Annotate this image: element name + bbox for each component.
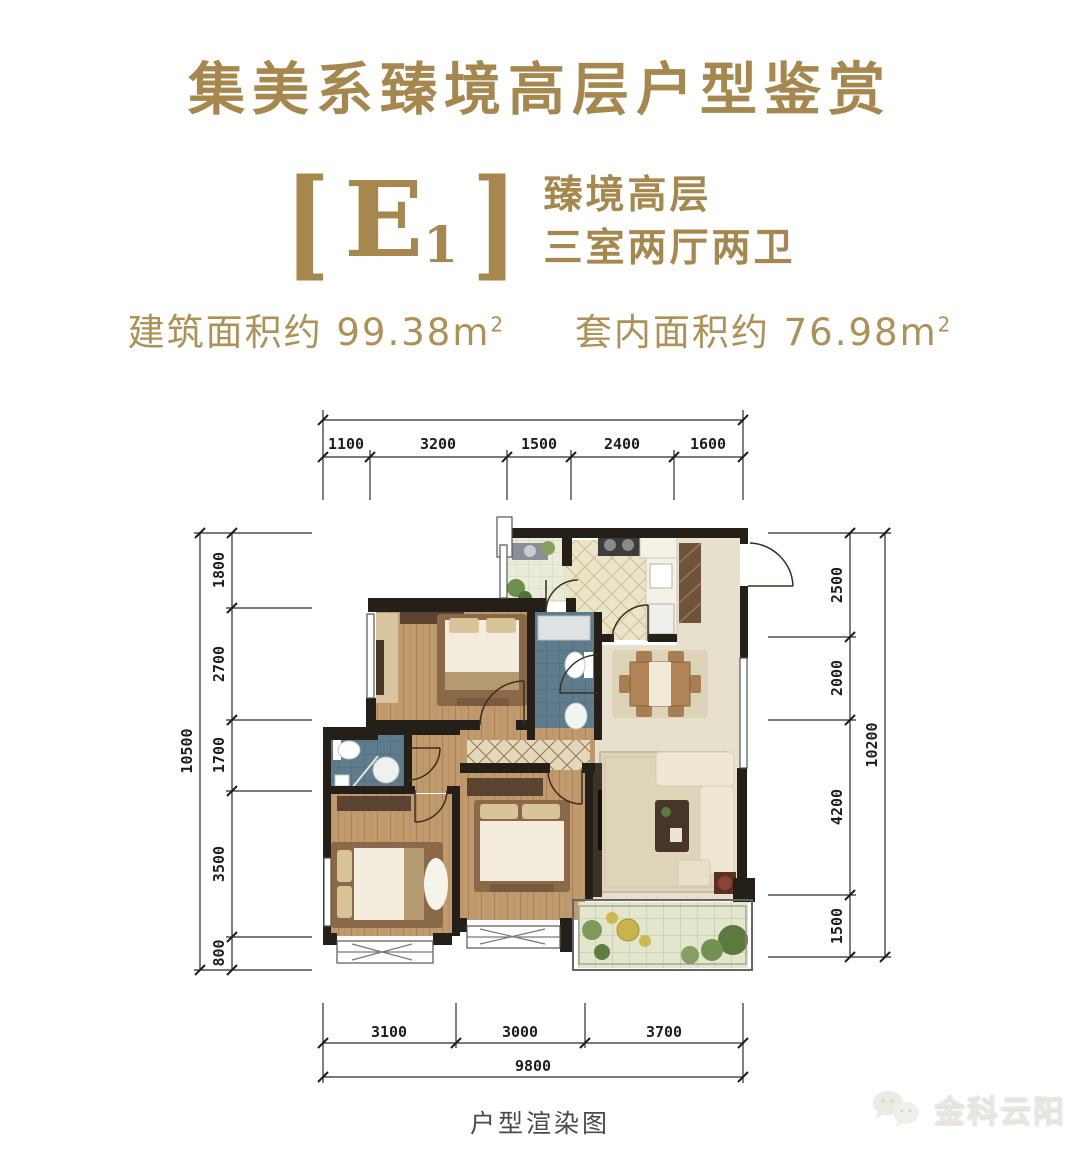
shoe-cabinet-icon	[679, 543, 701, 623]
dim-label: 10500	[178, 728, 196, 773]
bed-bench	[490, 884, 554, 892]
balcony-chair	[606, 912, 618, 924]
vanity	[538, 616, 590, 640]
pillow	[522, 804, 560, 819]
wardrobe-icon	[337, 796, 411, 811]
table-runner	[649, 662, 671, 706]
bed-bench	[457, 698, 509, 706]
watermark: 金科云阳	[868, 1086, 1066, 1131]
pillow	[486, 618, 516, 633]
pillow	[337, 850, 352, 882]
bed-throw	[445, 672, 519, 690]
plant-icon	[681, 946, 699, 964]
coffee-table-icon	[655, 800, 689, 852]
dim-label: 3700	[646, 1023, 682, 1041]
wechat-bubbles-icon	[868, 1088, 926, 1130]
shower-icon	[373, 757, 399, 783]
window	[740, 658, 747, 768]
basin-icon	[335, 775, 349, 786]
dim-label: 1800	[210, 552, 228, 588]
pillow	[449, 618, 479, 633]
plant-icon	[594, 944, 610, 960]
tv-icon	[598, 790, 602, 850]
dining-chair	[668, 651, 684, 662]
floor-plan: 1100 3200 1500 2400 1600 10500 1800 2700…	[0, 0, 1080, 1151]
dim-label: 1600	[690, 435, 726, 453]
washer-drum	[524, 545, 536, 557]
toilet-icon	[338, 741, 360, 759]
burner	[604, 539, 616, 551]
dining-chair	[619, 675, 630, 693]
sink-icon	[650, 564, 672, 588]
fridge-icon	[649, 604, 674, 634]
dining-chair	[668, 706, 684, 717]
toilet-icon	[565, 652, 585, 678]
burner	[622, 539, 634, 551]
entry-door-arc	[748, 543, 793, 586]
bedside-rug	[424, 858, 448, 910]
dim-label: 3000	[502, 1023, 538, 1041]
dim-label: 1500	[521, 435, 557, 453]
dim-label: 800	[210, 939, 228, 966]
dim-label: 2000	[828, 660, 846, 696]
balcony-chair	[639, 935, 651, 947]
balcony-table-icon	[617, 919, 639, 941]
dim-label: 4200	[828, 789, 846, 825]
window	[324, 858, 331, 926]
pillow	[480, 804, 518, 819]
dining-chair	[636, 651, 652, 662]
plant-icon	[541, 541, 555, 555]
bed-mattress	[480, 821, 564, 881]
pillow	[337, 886, 352, 918]
watermark-text: 金科云阳	[934, 1086, 1066, 1131]
tv-console-icon	[376, 640, 384, 695]
bed-throw	[404, 848, 424, 920]
dining-chair	[636, 706, 652, 717]
plant-icon	[661, 807, 671, 817]
dim-label: 3200	[420, 435, 456, 453]
sofa-icon	[656, 752, 734, 786]
dim-label: 3100	[371, 1023, 407, 1041]
dim-label: 2400	[604, 435, 640, 453]
table-tray	[670, 828, 682, 842]
shower-icon	[565, 703, 587, 729]
ottoman	[678, 860, 710, 886]
dim-label: 10200	[863, 722, 881, 767]
dim-label: 1100	[328, 435, 364, 453]
window	[367, 614, 374, 698]
dim-label: 1500	[828, 908, 846, 944]
plant-icon	[701, 939, 723, 961]
dim-label: 2700	[210, 646, 228, 682]
dim-label: 1700	[210, 737, 228, 773]
dim-label: 9800	[515, 1057, 551, 1075]
dim-label: 3500	[210, 846, 228, 882]
plant-icon	[582, 920, 602, 940]
side-table-lamp	[718, 876, 732, 890]
dim-label: 2500	[828, 567, 846, 603]
dining-chair	[690, 675, 701, 693]
wardrobe-icon	[467, 778, 543, 796]
window	[500, 545, 507, 598]
